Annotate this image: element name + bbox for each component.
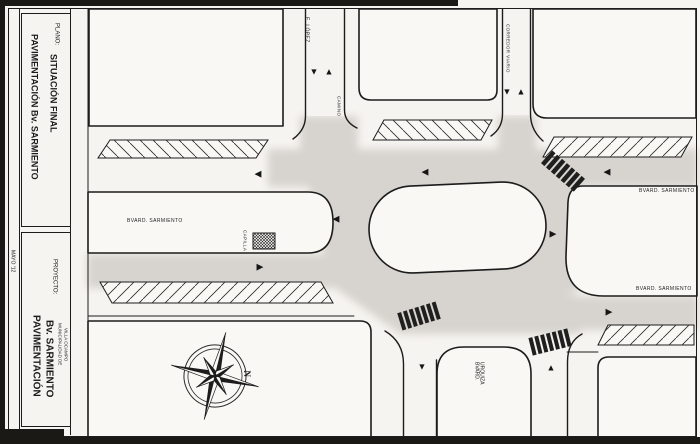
- traffic-arrow-down: ▼: [503, 88, 512, 97]
- block-top-middle: [359, 9, 497, 100]
- street-label-camino: CAMINO: [336, 96, 341, 116]
- street-label-bvard-sarmiento-west: BVARD. SARMIENTO: [127, 219, 183, 224]
- traffic-arrow-down: ▼: [310, 68, 319, 77]
- proyecto-title-line2: Bv. SARMIENTO: [43, 320, 54, 397]
- block-bottom-right: [598, 357, 696, 437]
- traffic-arrow-left: ◀: [604, 168, 611, 177]
- traffic-arrow-right: ▶: [606, 308, 613, 317]
- street-label-bvard-sarmiento-east-north: BVARD. SARMIENTO: [639, 189, 695, 194]
- sheet-date: MAYO '12: [9, 250, 14, 272]
- plan-linework: [0, 0, 700, 444]
- plano-label: PLANO:: [53, 23, 59, 45]
- titleblock-divider-1: [19, 8, 20, 435]
- scan-edge-top: [0, 0, 458, 6]
- proyecto-box: PROYECTO: PAVIMENTACIÓN Bv. SARMIENTO MU…: [21, 232, 71, 427]
- proyecto-org-line1: MUNICIPALIDAD DE: [57, 323, 62, 365]
- traffic-arrow-up: ▲: [325, 68, 334, 77]
- chapel-label: CAPILLA: [242, 230, 247, 251]
- street-label-bvard-urquiza-line2: URQUIZA: [478, 362, 483, 385]
- proyecto-org-line2: VILLA OCAMPO: [63, 328, 68, 361]
- scanned-plan-sheet: PLANO: PAVIMENTACIÓN Bv. SARMIENTO SITUA…: [0, 0, 700, 444]
- traffic-arrow-left: ◀: [333, 215, 340, 224]
- traffic-arrow-right: ▶: [550, 230, 557, 239]
- central-island: [367, 180, 548, 275]
- scan-edge-bottom: [0, 437, 700, 444]
- scan-edge-bottom-left: [0, 429, 64, 444]
- chapel-building: [253, 233, 275, 249]
- proyecto-title-line1: PAVIMENTACIÓN: [30, 315, 41, 397]
- scan-edge-left: [0, 0, 5, 444]
- block-top-left: [89, 9, 283, 126]
- traffic-arrow-up: ▲: [517, 88, 526, 97]
- plano-box: PLANO: PAVIMENTACIÓN Bv. SARMIENTO SITUA…: [21, 13, 71, 227]
- street-label-e-lopez: E. LÓPEZ: [303, 17, 308, 43]
- street-label-bvard-sarmiento-east-south: BVARD. SARMIENTO: [636, 287, 692, 292]
- plano-title-line2: SITUACIÓN FINAL: [48, 54, 57, 133]
- proyecto-label: PROYECTO:: [51, 259, 57, 294]
- median-east: [566, 186, 697, 296]
- block-bottom-middle: [437, 347, 531, 437]
- traffic-arrow-up: ▲: [547, 364, 556, 373]
- traffic-arrow-right: ▶: [257, 263, 264, 272]
- north-label: N: [242, 370, 251, 377]
- block-top-right: [533, 9, 696, 118]
- traffic-arrow-down: ▼: [418, 363, 427, 372]
- traffic-arrow-left: ◀: [422, 168, 429, 177]
- median-west: [88, 192, 333, 253]
- plano-title-line1: PAVIMENTACIÓN Bv. SARMIENTO: [29, 34, 38, 180]
- street-label-corredor-viario: CORREDOR VIARIO: [505, 24, 510, 73]
- traffic-arrow-left: ◀: [255, 170, 262, 179]
- street-label-bvard-urquiza: BVARD. URQUIZA: [473, 362, 484, 385]
